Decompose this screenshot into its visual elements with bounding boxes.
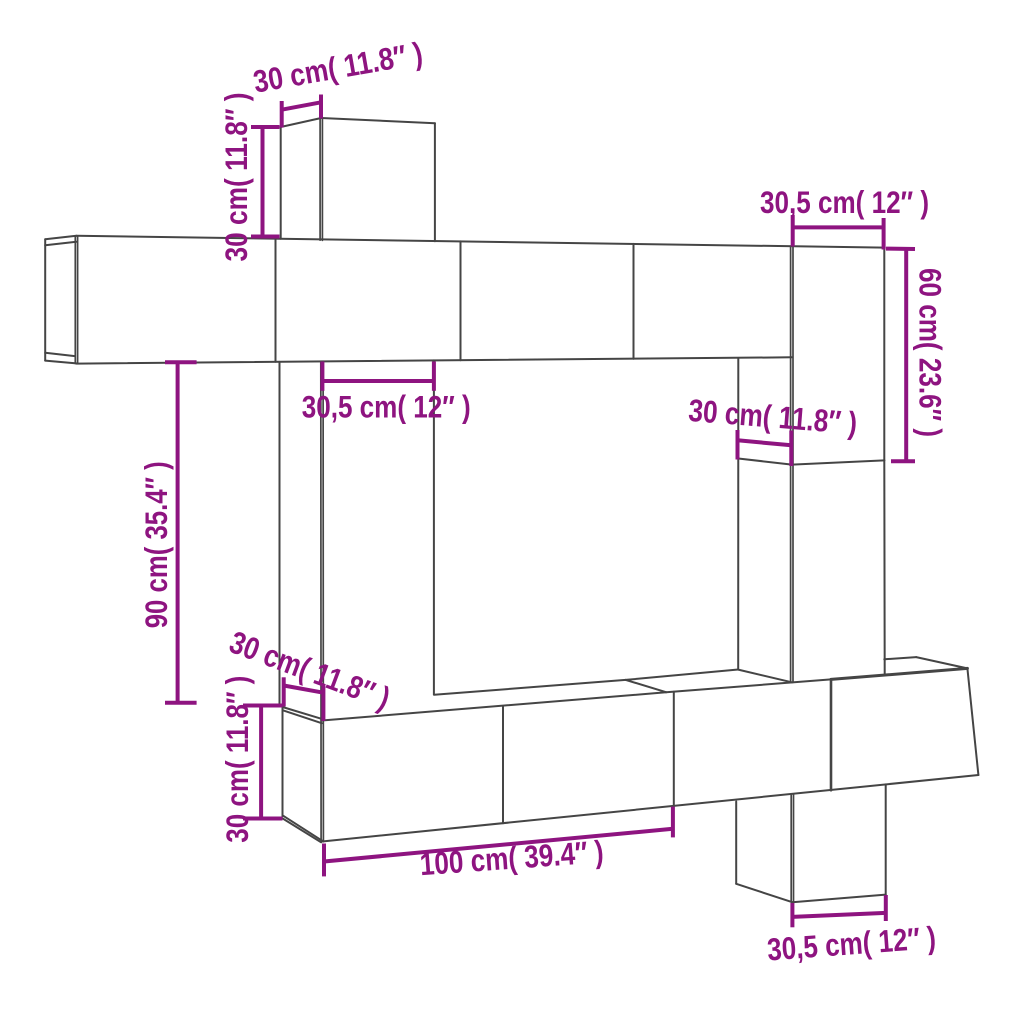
svg-text:30,5 cm( 12″ ): 30,5 cm( 12″ ) <box>760 184 929 220</box>
svg-text:60 cm( 23.6″ ): 60 cm( 23.6″ ) <box>913 268 949 437</box>
svg-text:90 cm( 35.4″ ): 90 cm( 35.4″ ) <box>138 461 174 628</box>
svg-text:30 cm( 11.8″ ): 30 cm( 11.8″ ) <box>218 93 254 262</box>
svg-text:30,5 cm( 12″ ): 30,5 cm( 12″ ) <box>302 388 471 424</box>
svg-text:30 cm( 11.8″ ): 30 cm( 11.8″ ) <box>219 676 255 843</box>
